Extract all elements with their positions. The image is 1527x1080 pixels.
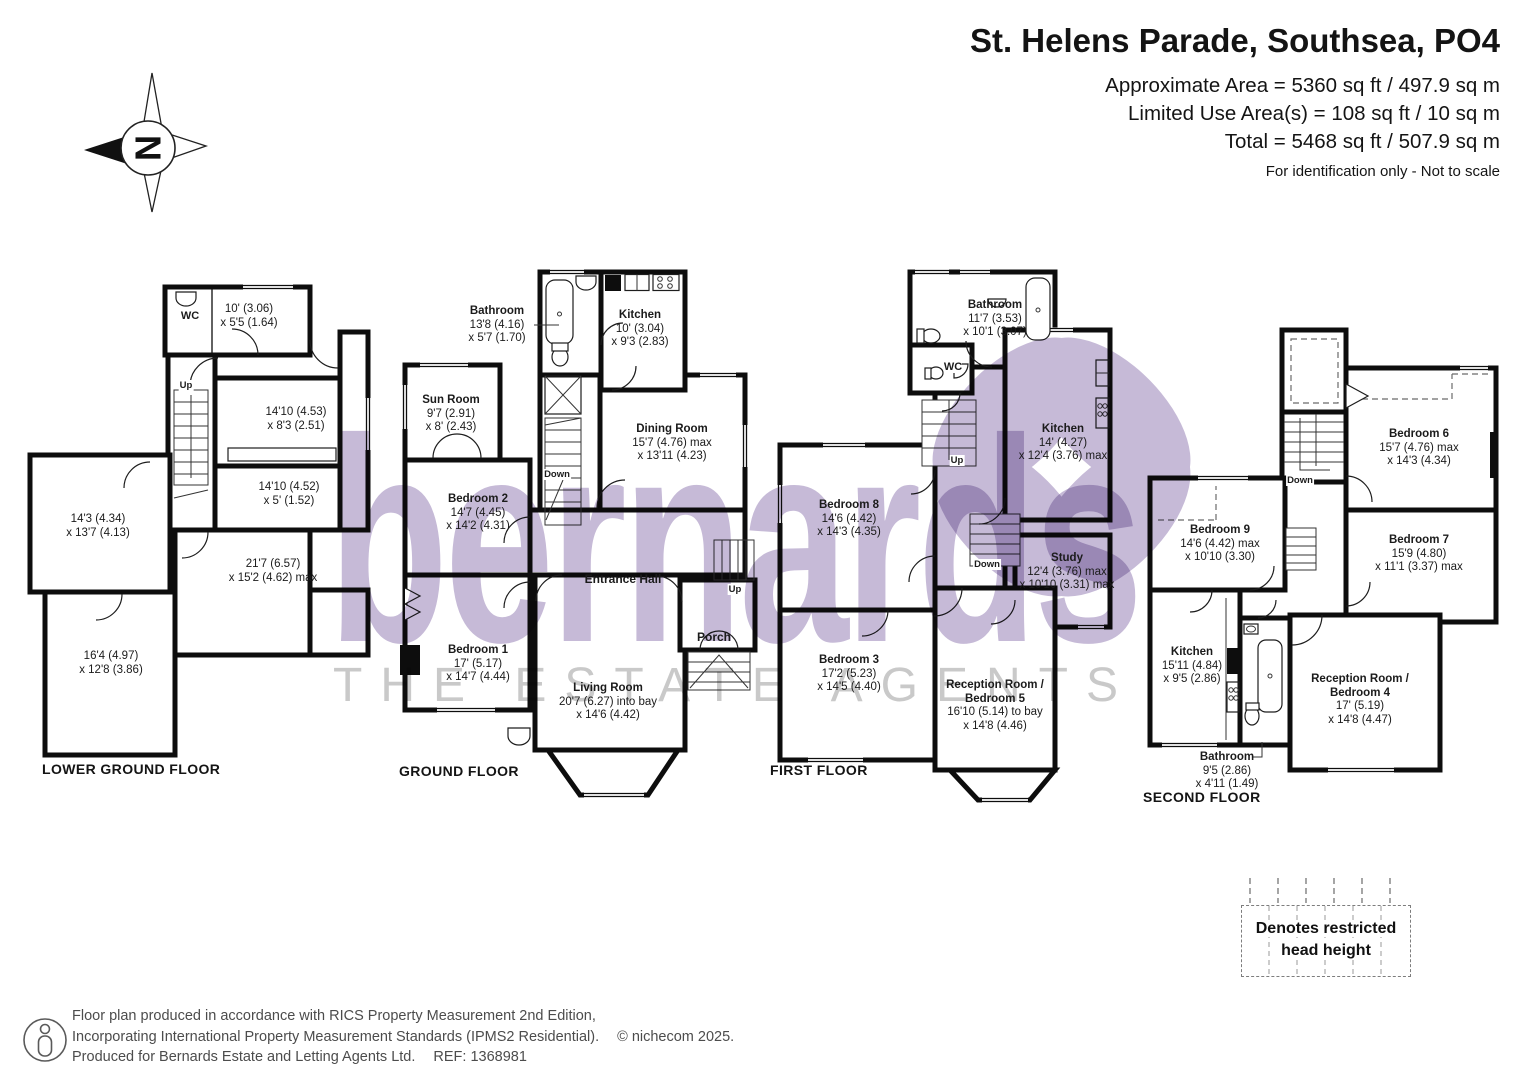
identification-note: For identification only - Not to scale	[970, 163, 1500, 180]
room-label-wc-ff: WC	[944, 361, 962, 373]
footer-disclaimer: Floor plan produced in accordance with R…	[72, 1006, 734, 1068]
floor-caption-lower-ground: LOWER GROUND FLOOR	[42, 761, 220, 777]
room-label-dining-room: Dining Room 15'7 (4.76) maxx 13'11 (4.23…	[632, 423, 712, 464]
room-label-wc-lg: WC	[181, 310, 199, 322]
room-label-164x128: 16'4 (4.97)x 12'8 (3.86)	[79, 650, 143, 677]
approximate-area: Approximate Area = 5360 sq ft / 497.9 sq…	[970, 72, 1500, 100]
floorplan-page: { "header": { "title": "St. Helens Parad…	[0, 0, 1527, 1080]
footer-line-1: Floor plan produced in accordance with R…	[72, 1006, 734, 1027]
svg-text:N: N	[128, 135, 169, 161]
floor-caption-ground: GROUND FLOOR	[399, 763, 519, 779]
compass-north-icon: N	[70, 60, 230, 230]
room-label-kitchen-gf: Kitchen 10' (3.04)x 9'3 (2.83)	[611, 309, 668, 350]
page-title: St. Helens Parade, Southsea, PO4	[970, 22, 1500, 60]
room-label-bathroom-ff: Bathroom 11'7 (3.53)x 10'1 (3.07)	[963, 299, 1027, 340]
stairs-up-label-lg: Up	[179, 380, 194, 391]
room-label-bedroom-6: Bedroom 6 15'7 (4.76) maxx 14'3 (4.34)	[1379, 428, 1459, 469]
room-label-bedroom-8: Bedroom 8 14'6 (4.42)x 14'3 (4.35)	[817, 499, 881, 540]
stairs-up-label-gf: Up	[728, 584, 743, 595]
room-label-entrance-hall: Entrance Hall	[585, 572, 662, 586]
room-label-bedroom-1: Bedroom 1 17' (5.17)x 14'7 (4.44)	[446, 644, 510, 685]
floor-caption-second: SECOND FLOOR	[1143, 789, 1261, 805]
footer-line-3: Produced for Bernards Estate and Letting…	[72, 1047, 734, 1068]
room-label-porch: Porch	[697, 630, 731, 644]
room-label-reception-bedroom-5: Reception Room / Bedroom 5 16'10 (5.14) …	[946, 679, 1044, 733]
room-label-217x152: 21'7 (6.57)x 15'2 (4.62) max	[229, 558, 318, 585]
room-label-bathroom-sf: Bathroom 9'5 (2.86)x 4'11 (1.49)	[1196, 751, 1259, 792]
floor-caption-first: FIRST FLOOR	[770, 762, 868, 778]
room-label-bedroom-9: Bedroom 9 14'6 (4.42) maxx 10'10 (3.30)	[1180, 524, 1260, 565]
limited-use-area: Limited Use Area(s) = 108 sq ft / 10 sq …	[970, 100, 1500, 128]
room-label-living-room: Living Room 20'7 (6.27) into bayx 14'6 (…	[559, 682, 657, 723]
room-label-143x137: 14'3 (4.34)x 13'7 (4.13)	[66, 513, 130, 540]
footer-copyright: © nichecom 2025.	[617, 1029, 734, 1045]
stairs-up-label-ff: Up	[950, 455, 965, 466]
room-label-kitchen-ff: Kitchen 14' (4.27)x 12'4 (3.76) max	[1019, 423, 1108, 464]
total-area: Total = 5468 sq ft / 507.9 sq m	[970, 128, 1500, 156]
footer-ref: REF: 1368981	[433, 1049, 527, 1065]
legend-text: Denotes restricted head height	[1242, 918, 1410, 961]
restricted-head-height-legend: Denotes restricted head height	[1241, 905, 1411, 977]
header-block: St. Helens Parade, Southsea, PO4 Approxi…	[970, 22, 1500, 180]
stairs-down-label-sf: Down	[1286, 475, 1314, 486]
room-label-sun-room: Sun Room 9'7 (2.91)x 8' (2.43)	[422, 394, 480, 435]
room-label-study: Study 12'4 (3.76) maxx 10'10 (3.31) max	[1020, 552, 1115, 593]
stairs-down-label-gf: Down	[543, 469, 571, 480]
footer-line-2: Incorporating International Property Mea…	[72, 1027, 734, 1048]
room-label-1410x83: 14'10 (4.53)x 8'3 (2.51)	[265, 406, 326, 433]
room-label-1410x5: 14'10 (4.52)x 5' (1.52)	[258, 481, 319, 508]
room-label-bedroom-3: Bedroom 3 17'2 (5.23)x 14'5 (4.40)	[817, 654, 881, 695]
room-label-reception-bedroom-4: Reception Room / Bedroom 4 17' (5.19)x 1…	[1311, 673, 1409, 727]
room-label-10x55: 10' (3.06)x 5'5 (1.64)	[220, 303, 277, 330]
person-icon	[22, 1012, 68, 1068]
room-label-kitchen-sf: Kitchen 15'11 (4.84)x 9'5 (2.86)	[1162, 646, 1222, 687]
room-label-bathroom-gf: Bathroom 13'8 (4.16)x 5'7 (1.70)	[468, 305, 525, 346]
room-label-bedroom-2: Bedroom 2 14'7 (4.45)x 14'2 (4.31)	[446, 493, 510, 534]
room-label-bedroom-7: Bedroom 7 15'9 (4.80)x 11'1 (3.37) max	[1375, 534, 1463, 575]
stairs-down-label-ff: Down	[973, 559, 1001, 570]
